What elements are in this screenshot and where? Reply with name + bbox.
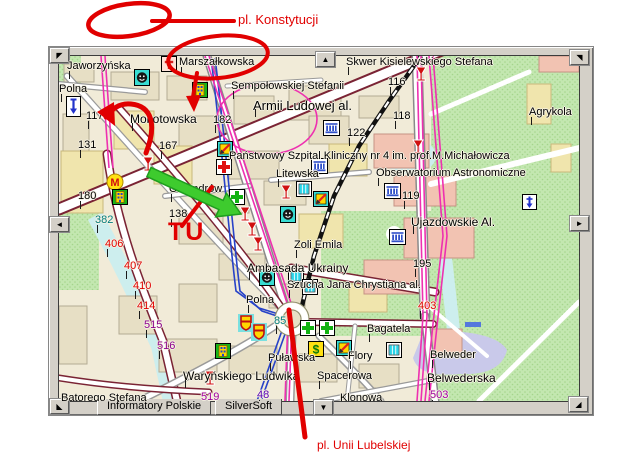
tab-silversoft[interactable]: SilverSoft <box>215 399 282 415</box>
wine-icon[interactable] <box>141 156 155 173</box>
house-number: 503 <box>430 389 448 401</box>
house-number: 116 <box>388 76 406 88</box>
street-label: Państwowy Szpital Kliniczny nr 4 im. pro… <box>229 150 510 162</box>
house-number: 138 <box>169 208 187 220</box>
street-label: Ambasada Ukrainy <box>247 261 348 275</box>
house-number: 382 <box>95 214 113 226</box>
house-number: 119 <box>402 190 420 202</box>
pan-west-button[interactable]: ◄ <box>50 217 69 232</box>
pan-east-button[interactable]: ► <box>570 216 589 231</box>
bank-icon[interactable] <box>384 183 401 199</box>
house-number: 122 <box>347 127 365 139</box>
street-label: Polna <box>246 294 274 306</box>
street-label: Litewska <box>276 168 319 180</box>
shop-icon[interactable] <box>386 342 402 358</box>
pan-north-button[interactable]: ▲ <box>316 52 335 67</box>
house-number: 118 <box>393 110 411 122</box>
house-number: 407 <box>124 260 142 272</box>
office-icon[interactable] <box>192 82 208 98</box>
house-number: 516 <box>157 340 175 352</box>
shield-icon[interactable] <box>251 323 267 341</box>
pan-southwest-button[interactable]: ◣ <box>50 399 69 414</box>
bank-icon[interactable] <box>323 120 340 136</box>
pan-south-button[interactable]: ▼ <box>314 400 333 415</box>
shop-icon[interactable] <box>296 181 312 197</box>
street-label: Klonowa <box>340 392 382 402</box>
house-number: 167 <box>159 140 177 152</box>
street-label: Bagatela <box>367 323 410 335</box>
house-number: 414 <box>137 300 155 312</box>
street-label: Obserwatorium Astronomiczne <box>376 167 526 179</box>
street-label: Spacerowa <box>317 370 372 382</box>
wine-icon[interactable] <box>279 184 293 201</box>
pharmacy-icon[interactable] <box>300 320 316 336</box>
street-label: Belweder <box>430 349 476 361</box>
pharmacy-icon[interactable] <box>319 320 335 336</box>
annotation-pl-unii-lubelskiej: pl. Unii Lubelskiej <box>317 438 410 452</box>
street-label: Zoli Emila <box>294 239 342 251</box>
wine-icon[interactable] <box>251 236 265 253</box>
street-label: Polna <box>59 83 87 95</box>
house-number: 48 <box>257 389 269 401</box>
street-label: Mokotowska <box>130 112 197 126</box>
pan-southeast-button[interactable]: ◢ <box>569 397 588 412</box>
wine-icon[interactable] <box>414 66 428 83</box>
street-label: Sempołowskiej Stefanii <box>231 80 344 92</box>
svg-text:M: M <box>110 177 119 189</box>
theater-icon[interactable] <box>280 206 296 223</box>
pharmacy-icon[interactable] <box>229 189 245 205</box>
house-number: 519 <box>201 391 219 402</box>
postal-icon[interactable] <box>313 191 329 207</box>
bank-icon[interactable] <box>389 229 406 245</box>
tab-informatory-polskie[interactable]: Informatory Polskie <box>97 399 211 415</box>
street-label: Batorego Stefana <box>61 392 147 402</box>
house-number: 182 <box>213 114 231 126</box>
street-label: Szucha Jana Chrystiana al. <box>287 279 421 291</box>
house-number: 403 <box>418 300 436 312</box>
pan-northeast-button[interactable]: ◥ <box>570 50 589 65</box>
street-label: Oleandrów <box>169 183 222 195</box>
street-label: Skwer Kisielewskiego Stefana <box>346 56 493 68</box>
street-label: Belwederska <box>427 371 496 385</box>
church-icon[interactable] <box>161 56 177 72</box>
house-number: 131 <box>78 139 96 151</box>
theater-icon[interactable] <box>134 69 150 86</box>
map-application: JaworzyńskaPolnaMarszałkowskaSempołowski… <box>0 0 642 466</box>
parkarrow-icon[interactable] <box>522 194 537 210</box>
street-label: Waryńskiego Ludwika <box>183 369 299 383</box>
map-canvas[interactable]: JaworzyńskaPolnaMarszałkowskaSempołowski… <box>58 55 580 402</box>
office-icon[interactable] <box>215 343 231 359</box>
house-number: 85 <box>274 315 286 327</box>
street-label: Marszałkowska <box>179 56 254 68</box>
house-number: 406 <box>105 238 123 250</box>
street-label: Jaworzyńska <box>67 60 131 72</box>
street-label: Flory <box>348 350 372 362</box>
office-icon[interactable] <box>112 189 128 205</box>
street-label: Ujazdowskie Al. <box>411 215 495 229</box>
house-number: 410 <box>133 280 151 292</box>
house-number: 515 <box>144 319 162 331</box>
street-label: Puławska <box>268 352 315 364</box>
annotation-pl-konstytucji: pl. Konstytucji <box>238 12 318 27</box>
street-label: Armii Ludowej al. <box>253 98 352 113</box>
house-number: 180 <box>78 190 96 202</box>
arrowbox-icon[interactable] <box>66 96 81 117</box>
house-number: 195 <box>413 258 431 270</box>
street-label: Agrykola <box>529 106 572 118</box>
house-number: 117 <box>86 110 104 122</box>
